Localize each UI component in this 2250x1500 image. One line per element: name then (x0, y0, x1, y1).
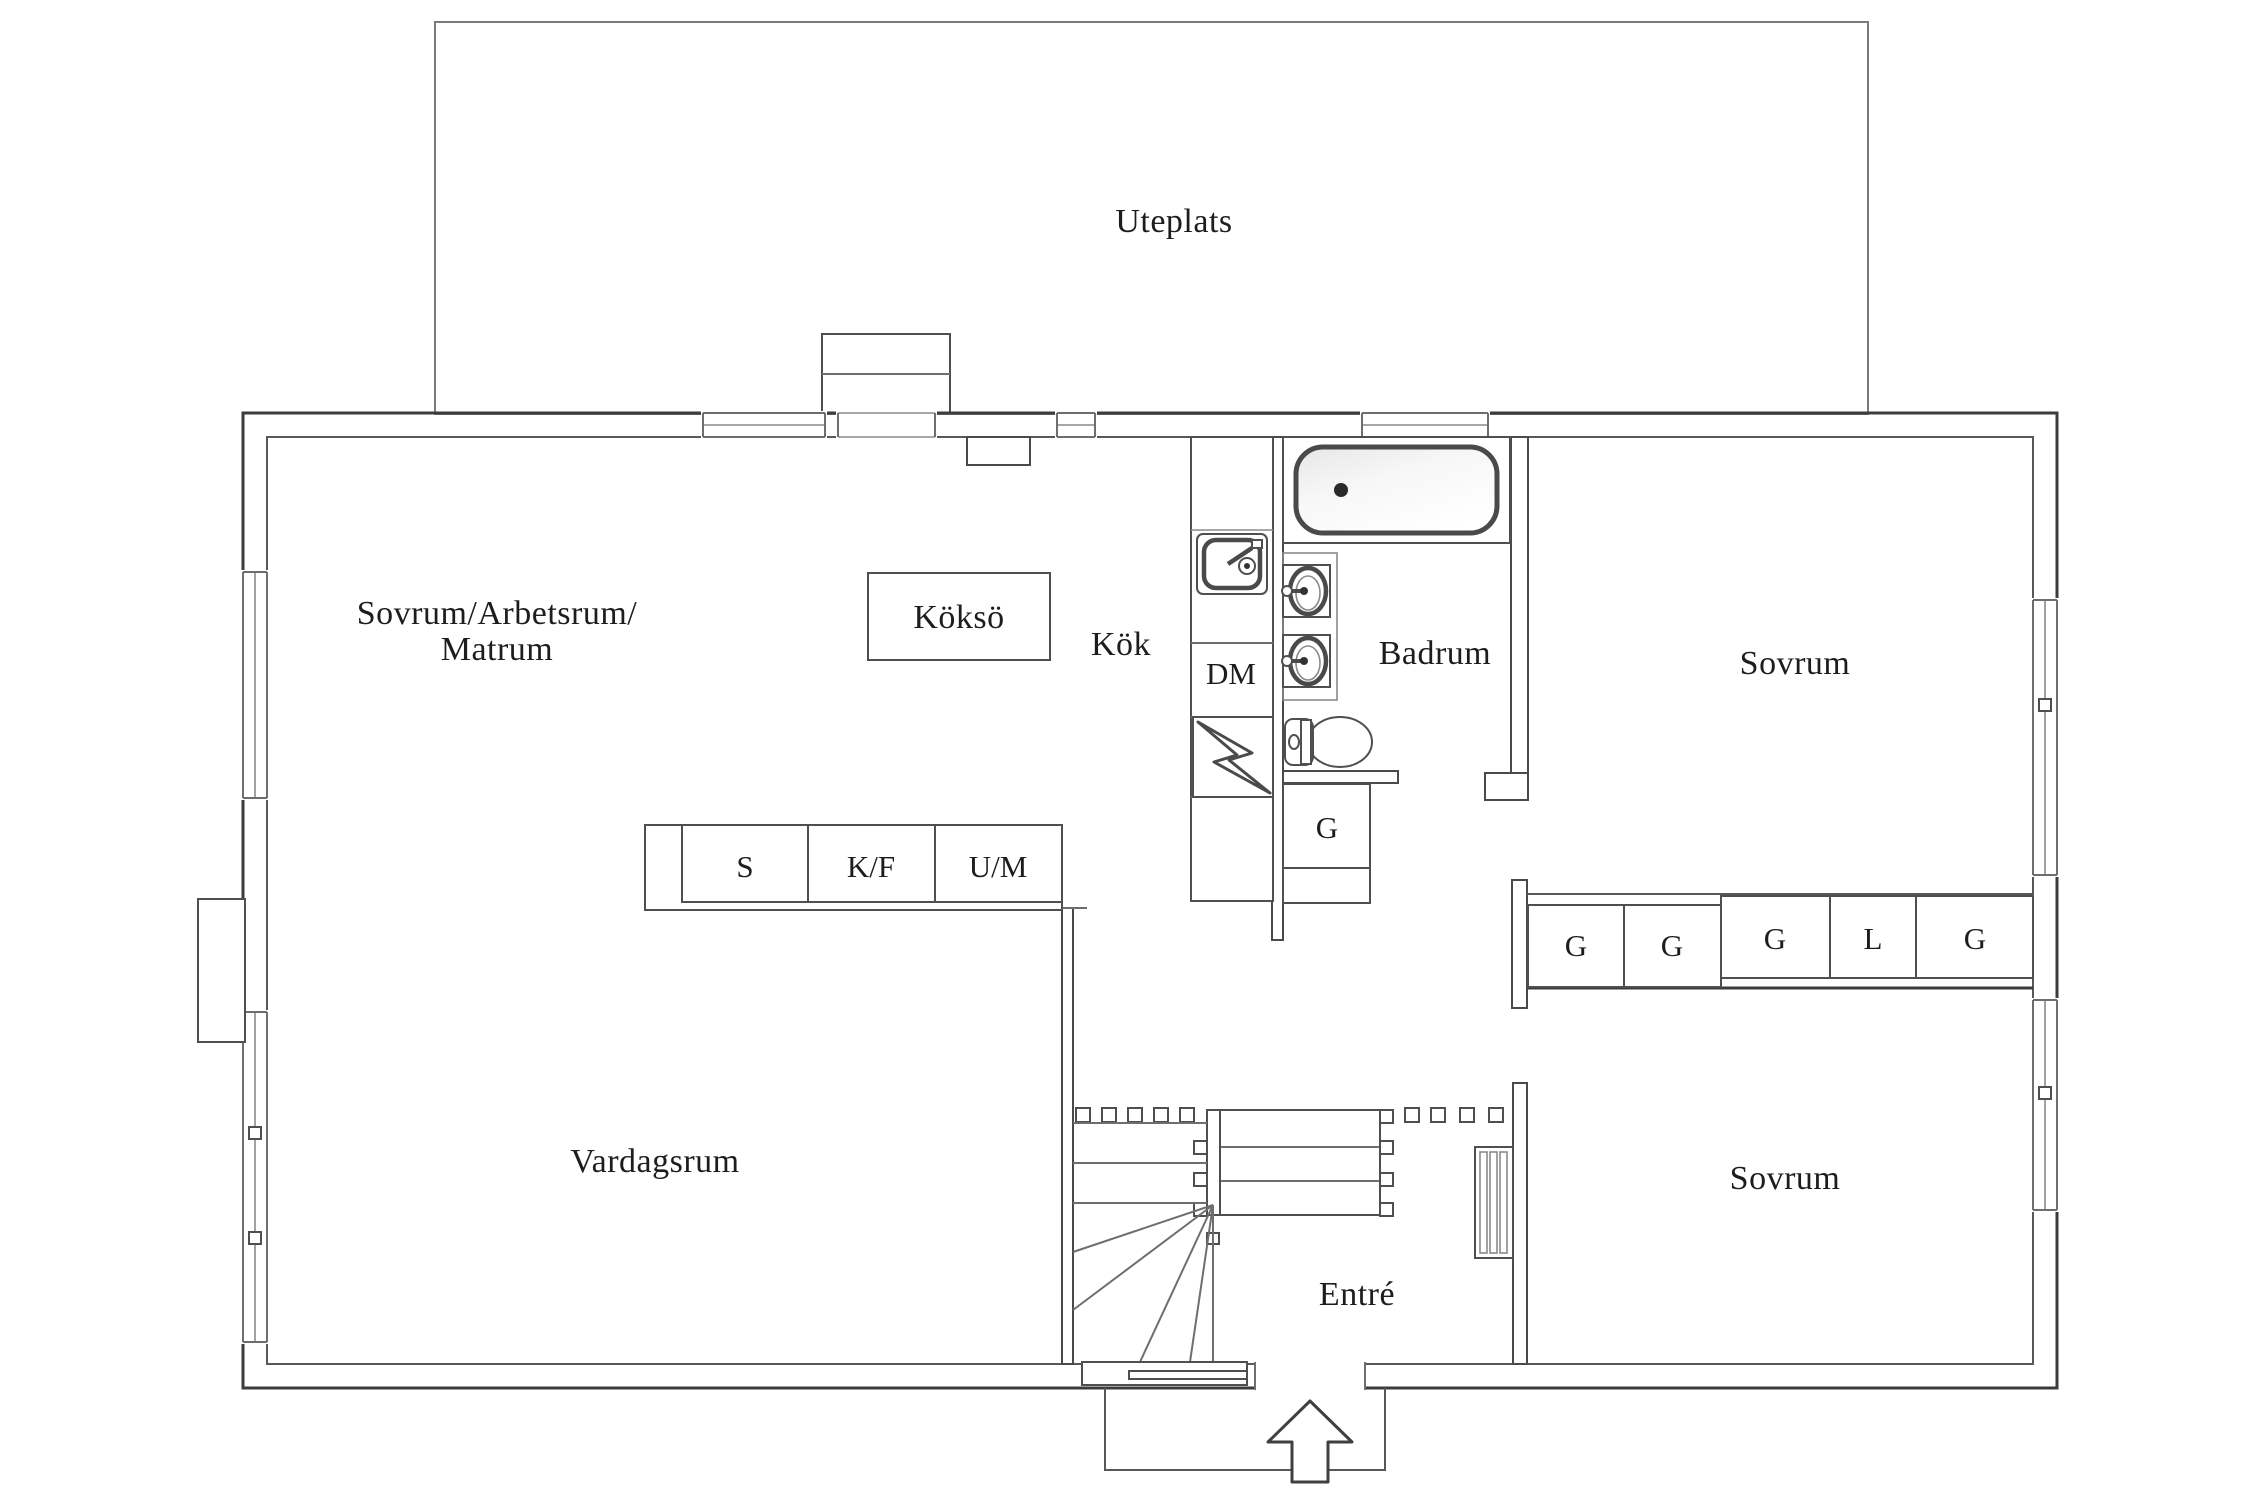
window-handle (2039, 699, 2051, 711)
radiator-icon (1475, 1147, 1513, 1258)
toilet-icon (1285, 717, 1372, 767)
label-badrum: Badrum (1379, 635, 1492, 672)
window (2031, 598, 2059, 877)
window (2031, 998, 2059, 1212)
kitchen-top-wall-stub (967, 437, 1030, 465)
sink-icon (1197, 534, 1267, 594)
entre-right-wall (1513, 1083, 1527, 1364)
label-matrum: Matrum (441, 631, 554, 668)
vanity-basins (1282, 553, 1337, 700)
label-cabinet-kf: K/F (847, 849, 895, 884)
label-closet-g5: G (1964, 921, 1986, 956)
bathroom-right-wall (1511, 437, 1528, 773)
window (241, 1010, 269, 1344)
label-kok: Kök (1091, 626, 1151, 663)
window-handle (2039, 1087, 2051, 1099)
label-closet-l: L (1864, 921, 1883, 956)
label-cabinet-um: U/M (969, 849, 1028, 884)
label-closet-g3: G (1764, 921, 1786, 956)
label-sovrum-top: Sovrum (1740, 645, 1851, 682)
window-handle (249, 1232, 261, 1244)
washbasin-icon (1282, 635, 1330, 687)
label-closet-g1: G (1565, 928, 1587, 963)
closet-row-left-wall (1512, 880, 1527, 1008)
front-door-opening (1255, 1360, 1365, 1390)
bathroom-bottom-wall (1283, 771, 1398, 783)
patio-door-opening (836, 411, 937, 439)
staircase (1073, 1108, 1503, 1385)
kitchen (645, 437, 1273, 910)
label-entre: Entré (1319, 1276, 1395, 1313)
entrance (1105, 1388, 1385, 1482)
label-sovrum-bottom: Sovrum (1730, 1160, 1841, 1197)
floor-plan-page: Uteplats Sovrum/Arbetsrum/ Matrum Köksö … (0, 0, 2250, 1500)
facade-projection (198, 899, 245, 1042)
bathroom-door-jamb (1485, 773, 1528, 800)
label-bathroom-closet: G (1316, 810, 1338, 845)
window-handle (249, 1127, 261, 1139)
window (1360, 411, 1490, 439)
label-dm: DM (1206, 656, 1256, 691)
labels: Uteplats Sovrum/Arbetsrum/ Matrum Köksö … (357, 203, 1986, 1313)
washbasin-icon (1282, 565, 1330, 617)
label-vardagsrum: Vardagsrum (570, 1143, 739, 1180)
window (701, 411, 827, 439)
bathtub-icon (1283, 437, 1510, 543)
label-closet-g2: G (1661, 928, 1683, 963)
label-kokso: Köksö (913, 599, 1004, 636)
floor-plan-drawing: Uteplats Sovrum/Arbetsrum/ Matrum Köksö … (0, 0, 2250, 1500)
label-cabinet-s: S (736, 849, 753, 884)
entry-porch (1105, 1388, 1385, 1470)
window (1055, 411, 1097, 439)
label-sovrum-arbetsrum: Sovrum/Arbetsrum/ (357, 595, 638, 632)
stairwell-left-wall (1062, 908, 1073, 1364)
stove-icon (1193, 717, 1273, 797)
label-uteplats: Uteplats (1115, 203, 1232, 240)
window (241, 570, 269, 800)
